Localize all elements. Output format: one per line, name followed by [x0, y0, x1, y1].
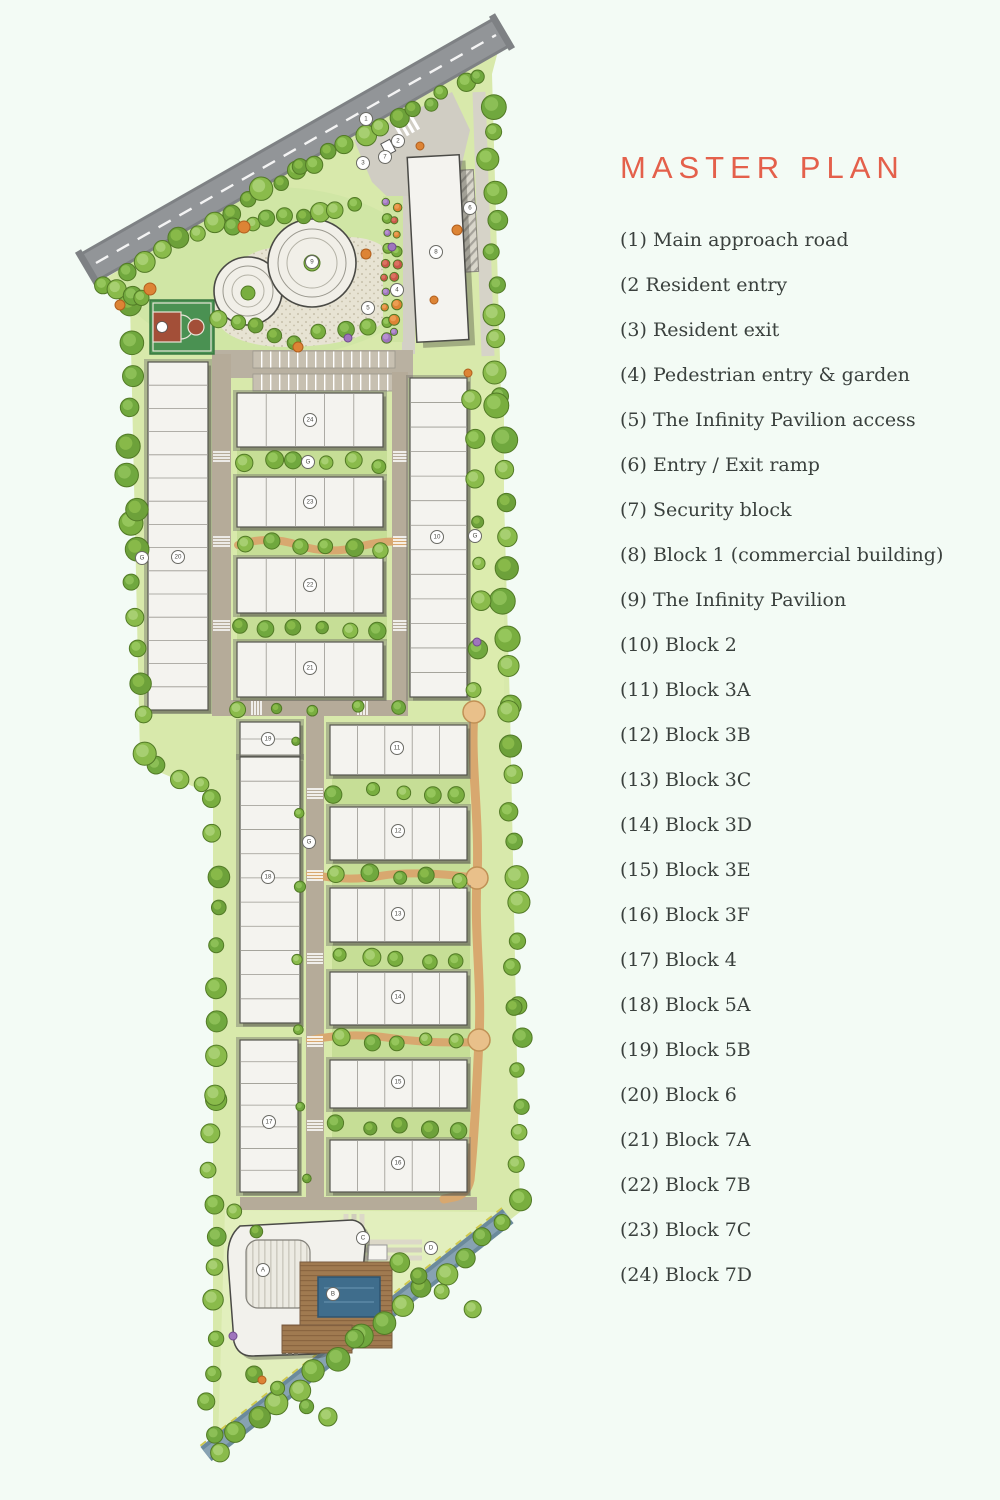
- map-badge-24: 24: [304, 414, 317, 427]
- map-badge-4: 4: [391, 284, 404, 297]
- map-badge-9: 9: [306, 256, 319, 269]
- svg-text:9: 9: [310, 259, 314, 266]
- svg-text:8: 8: [434, 249, 438, 256]
- legend-item-24: (24) Block 7D: [620, 1266, 980, 1285]
- map-badge-7: 7: [379, 151, 392, 164]
- map-badge-A: A: [257, 1264, 270, 1277]
- svg-text:23: 23: [307, 499, 314, 506]
- map-badge-1: 1: [360, 113, 373, 126]
- legend-item-4: (4) Pedestrian entry & garden: [620, 366, 980, 385]
- map-badge-8: 8: [430, 246, 443, 259]
- legend-item-2: (2 Resident entry: [620, 276, 980, 295]
- parking-stalls: [253, 351, 395, 368]
- map-badge-G: G: [303, 836, 316, 849]
- svg-text:21: 21: [307, 665, 314, 672]
- svg-text:19: 19: [265, 736, 272, 743]
- svg-text:B: B: [331, 1291, 335, 1298]
- basketball-court: [150, 300, 214, 354]
- legend-item-8: (8) Block 1 (commercial building): [620, 546, 980, 565]
- legend-item-19: (19) Block 5B: [620, 1041, 980, 1060]
- svg-text:12: 12: [395, 828, 402, 835]
- legend-item-3: (3) Resident exit: [620, 321, 980, 340]
- svg-text:5: 5: [366, 305, 370, 312]
- map-badge-12: 12: [392, 825, 405, 838]
- map-badge-15: 15: [392, 1076, 405, 1089]
- svg-text:10: 10: [434, 534, 441, 541]
- map-badge-G: G: [302, 456, 315, 469]
- legend-item-1: (1) Main approach road: [620, 231, 980, 250]
- svg-text:G: G: [140, 555, 145, 562]
- legend-item-14: (14) Block 3D: [620, 816, 980, 835]
- svg-text:2: 2: [396, 138, 400, 145]
- legend-item-6: (6) Entry / Exit ramp: [620, 456, 980, 475]
- map-badge-17: 17: [263, 1116, 276, 1129]
- map-badge-19: 19: [262, 733, 275, 746]
- map-badge-C: C: [357, 1232, 370, 1245]
- page-title: MASTER PLAN: [620, 150, 980, 186]
- svg-text:G: G: [307, 839, 312, 846]
- map-badge-6: 6: [464, 202, 477, 215]
- map-badge-16: 16: [392, 1157, 405, 1170]
- svg-text:16: 16: [395, 1160, 402, 1167]
- residential-block: [240, 757, 300, 1023]
- legend-item-11: (11) Block 3A: [620, 681, 980, 700]
- legend-item-16: (16) Block 3F: [620, 906, 980, 925]
- svg-text:24: 24: [307, 417, 314, 424]
- map-badge-D: D: [425, 1242, 438, 1255]
- svg-text:C: C: [361, 1235, 366, 1242]
- svg-text:G: G: [473, 533, 478, 540]
- svg-text:20: 20: [175, 554, 182, 561]
- svg-text:22: 22: [307, 582, 314, 589]
- svg-text:4: 4: [395, 287, 399, 294]
- map-badge-G: G: [136, 552, 149, 565]
- map-badge-11: 11: [391, 742, 404, 755]
- map-badge-B: B: [327, 1288, 340, 1301]
- legend-item-12: (12) Block 3B: [620, 726, 980, 745]
- legend-item-17: (17) Block 4: [620, 951, 980, 970]
- svg-text:D: D: [429, 1245, 434, 1252]
- legend-item-10: (10) Block 2: [620, 636, 980, 655]
- legend-item-23: (23) Block 7C: [620, 1221, 980, 1240]
- legend-item-9: (9) The Infinity Pavilion: [620, 591, 980, 610]
- svg-text:3: 3: [361, 160, 365, 167]
- map-badge-13: 13: [392, 908, 405, 921]
- svg-text:7: 7: [383, 154, 387, 161]
- svg-text:1: 1: [364, 116, 368, 123]
- legend-panel: MASTER PLAN (1) Main approach road(2 Res…: [620, 150, 980, 1311]
- map-badge-14: 14: [392, 991, 405, 1004]
- master-plan-page: 127368945242322212010GGGG191112131415161…: [0, 0, 1000, 1500]
- legend-item-13: (13) Block 3C: [620, 771, 980, 790]
- map-badge-G: G: [469, 530, 482, 543]
- svg-text:17: 17: [266, 1119, 273, 1126]
- legend-item-20: (20) Block 6: [620, 1086, 980, 1105]
- legend-item-18: (18) Block 5A: [620, 996, 980, 1015]
- map-badge-22: 22: [304, 579, 317, 592]
- map-badge-20: 20: [172, 551, 185, 564]
- svg-text:6: 6: [468, 205, 472, 212]
- legend-item-22: (22) Block 7B: [620, 1176, 980, 1195]
- legend-item-5: (5) The Infinity Pavilion access: [620, 411, 980, 430]
- legend-item-7: (7) Security block: [620, 501, 980, 520]
- map-badge-18: 18: [262, 871, 275, 884]
- svg-text:13: 13: [395, 911, 402, 918]
- legend-item-15: (15) Block 3E: [620, 861, 980, 880]
- residential-block: [148, 362, 208, 710]
- svg-text:18: 18: [265, 874, 272, 881]
- svg-text:14: 14: [395, 994, 402, 1001]
- legend-list: (1) Main approach road(2 Resident entry(…: [620, 231, 980, 1285]
- map-badge-5: 5: [362, 302, 375, 315]
- map-badge-23: 23: [304, 496, 317, 509]
- svg-text:G: G: [306, 459, 311, 466]
- map-badge-2: 2: [392, 135, 405, 148]
- map-badge-21: 21: [304, 662, 317, 675]
- map-badge-3: 3: [357, 157, 370, 170]
- svg-text:15: 15: [395, 1079, 402, 1086]
- svg-text:11: 11: [394, 745, 401, 752]
- legend-item-21: (21) Block 7A: [620, 1131, 980, 1150]
- map-badge-10: 10: [431, 531, 444, 544]
